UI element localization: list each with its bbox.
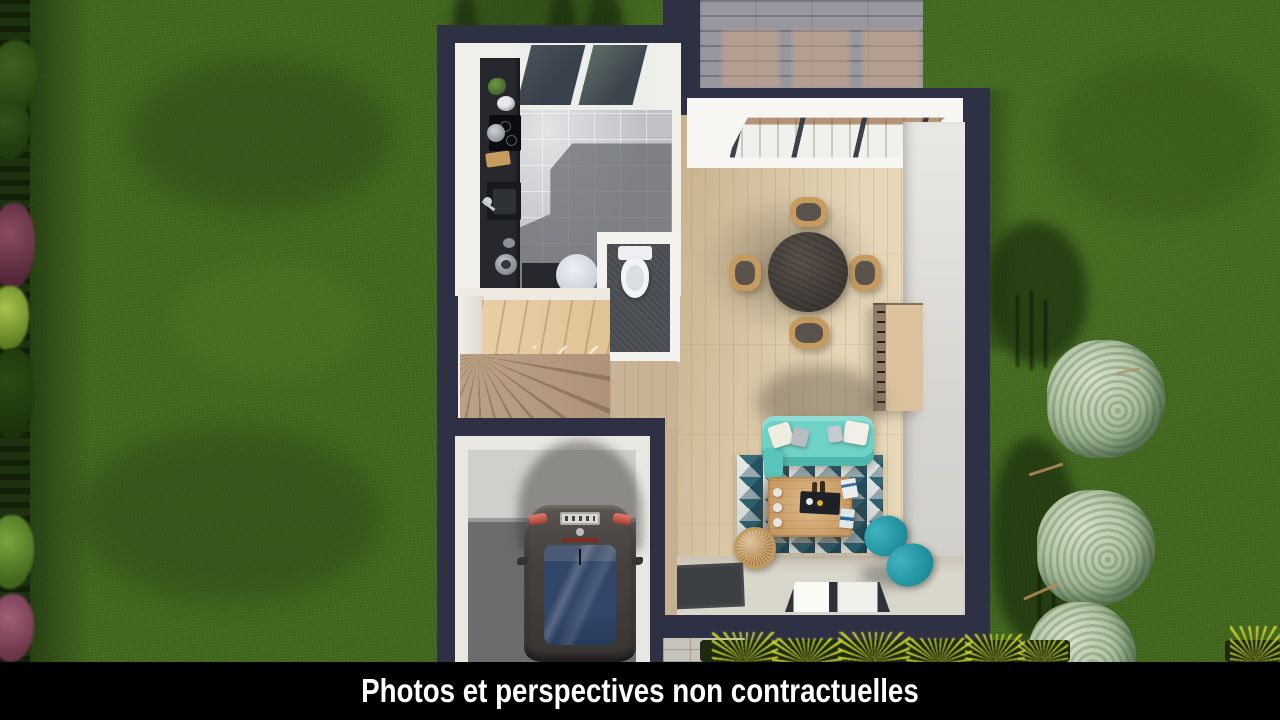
tree-trunk-shadow [1044, 300, 1047, 368]
lawn-mottle [130, 60, 390, 210]
bowl [503, 238, 515, 248]
ornamental-grass [838, 632, 910, 662]
side-mirror [632, 557, 643, 565]
dining-table [768, 232, 848, 312]
kettle [497, 96, 515, 111]
doormat [671, 562, 745, 609]
caption-bar: Photos et perspectives non contractuelle… [0, 662, 1280, 720]
dining-chair [789, 317, 829, 349]
cushion [827, 425, 843, 443]
dining-chair [790, 197, 827, 227]
car [524, 505, 636, 662]
floor-plan-render: Photos et perspectives non contractuelle… [0, 0, 1280, 720]
lawn-highlight [170, 260, 370, 380]
tree-trunk-shadow [1030, 290, 1033, 370]
lawn-mottle [80, 430, 380, 600]
side-mirror [517, 557, 528, 565]
ornamental-grass [1018, 640, 1068, 662]
coffee-maker [495, 254, 517, 275]
ornamental-grass [906, 638, 972, 664]
tree-shadow [988, 222, 1088, 362]
hedge-shadow [28, 0, 90, 662]
ornamental-grass [772, 638, 842, 664]
terrace-light-patch [792, 30, 850, 88]
wood-floor-edge [665, 428, 677, 615]
burner [506, 135, 517, 146]
staircase-lower-flight [460, 354, 610, 428]
terrace-light-patch [862, 30, 920, 88]
lawn-mottle [1050, 60, 1270, 220]
cup [806, 498, 813, 505]
ornamental-grass [965, 634, 1025, 662]
car-antenna [579, 549, 581, 565]
magazine [840, 478, 858, 499]
dining-chair [729, 255, 761, 291]
fruit [817, 500, 823, 506]
tree-trunk-shadow [1016, 295, 1019, 367]
staircase-upper-flight [482, 300, 610, 356]
car-logo [576, 528, 584, 536]
toilet [621, 258, 649, 298]
cup [773, 488, 782, 497]
sink-basin [493, 189, 516, 214]
cup [773, 503, 782, 512]
floor-window [785, 582, 890, 612]
brake-light [562, 538, 598, 542]
sofa-chaise [764, 448, 783, 480]
ornamental-grass [712, 632, 778, 662]
caption-text: Photos et perspectives non contractuelle… [361, 672, 919, 710]
pot [487, 124, 505, 142]
cup [773, 518, 782, 527]
terrace-light-patch [722, 30, 780, 88]
cushion [842, 420, 869, 446]
magazine [839, 508, 855, 528]
ornamental-grass [1230, 626, 1280, 662]
license-plate [560, 512, 600, 525]
dining-chair [849, 255, 881, 291]
